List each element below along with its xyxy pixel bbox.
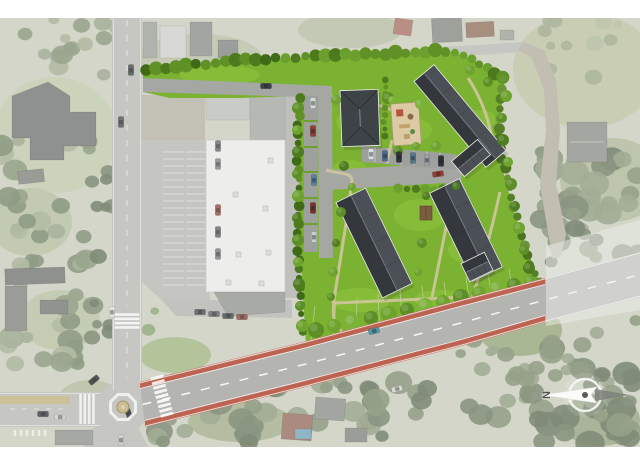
gray-house-c bbox=[143, 22, 157, 58]
play-equipment bbox=[399, 124, 410, 129]
tree-blob bbox=[529, 411, 549, 428]
tree-blob bbox=[337, 381, 352, 394]
tree-blob bbox=[97, 69, 111, 81]
tree-blob bbox=[51, 46, 73, 65]
tree-blob bbox=[29, 255, 44, 267]
letterbox-top bbox=[0, 0, 640, 18]
car bbox=[410, 153, 416, 164]
tree-blob bbox=[469, 404, 493, 425]
tree-blob bbox=[176, 424, 193, 438]
tree-blob bbox=[590, 327, 604, 339]
tree-blob bbox=[604, 34, 618, 46]
tree-blob bbox=[89, 249, 106, 264]
tree-blob bbox=[573, 337, 591, 352]
car bbox=[55, 414, 66, 420]
garage bbox=[17, 169, 44, 185]
tree-blob bbox=[31, 229, 48, 244]
east-house bbox=[567, 122, 607, 162]
tree-blob bbox=[85, 176, 99, 188]
tree-blob bbox=[52, 198, 70, 214]
car bbox=[215, 205, 221, 216]
tree-blob bbox=[76, 230, 92, 243]
ne-house bbox=[431, 17, 462, 43]
car bbox=[396, 152, 402, 163]
tree-blob bbox=[516, 370, 535, 386]
car bbox=[215, 249, 221, 260]
rooftop-unit bbox=[266, 250, 271, 255]
rooftop-unit bbox=[263, 206, 268, 211]
ne-shed bbox=[500, 30, 514, 40]
tree-blob bbox=[92, 320, 102, 329]
car bbox=[310, 98, 316, 109]
tree-blob bbox=[455, 349, 465, 358]
tree-blob bbox=[613, 21, 622, 29]
sw-house bbox=[55, 430, 93, 445]
tree-blob bbox=[561, 41, 573, 51]
rooftop-unit bbox=[259, 281, 264, 286]
car bbox=[311, 232, 317, 243]
market-top-band bbox=[206, 95, 250, 120]
scene-svg: N bbox=[0, 0, 640, 470]
farm-c bbox=[40, 300, 68, 314]
rooftop-unit bbox=[226, 280, 231, 285]
tree-blob bbox=[100, 202, 111, 211]
market-gravel bbox=[142, 95, 205, 140]
tree-blob bbox=[474, 362, 490, 376]
tree-blob bbox=[497, 347, 514, 362]
tree-blob bbox=[585, 70, 603, 85]
pool bbox=[295, 429, 311, 439]
car bbox=[310, 203, 316, 214]
compass-center-dot bbox=[582, 392, 589, 399]
play-equipment bbox=[404, 134, 410, 139]
market-gray-wing bbox=[250, 95, 285, 142]
tree-blob bbox=[6, 356, 24, 371]
farm-b bbox=[5, 286, 27, 331]
car bbox=[382, 151, 388, 162]
car bbox=[310, 126, 316, 137]
tree-blob bbox=[84, 331, 100, 345]
tree-blob bbox=[89, 299, 99, 307]
tree-blob bbox=[100, 174, 113, 185]
red-roof-house bbox=[393, 18, 413, 36]
parking-bays-west bbox=[304, 96, 318, 252]
tree-blob bbox=[34, 351, 53, 367]
car bbox=[215, 159, 221, 170]
car bbox=[438, 156, 444, 167]
tree-blob bbox=[623, 395, 637, 407]
tree-blob bbox=[548, 369, 563, 382]
car bbox=[215, 227, 221, 238]
car bbox=[209, 311, 220, 317]
rooftop-unit bbox=[236, 252, 241, 257]
market-lot bbox=[142, 140, 210, 300]
tree-blob bbox=[18, 28, 33, 41]
compass-north-label: N bbox=[541, 391, 553, 399]
tree-blob bbox=[600, 196, 617, 210]
tree-blob bbox=[228, 408, 254, 430]
car bbox=[432, 171, 444, 178]
tree-blob bbox=[73, 18, 90, 33]
tree-blob bbox=[606, 413, 634, 437]
tree-blob bbox=[150, 307, 159, 314]
car bbox=[195, 309, 206, 315]
tree-blob bbox=[485, 347, 496, 356]
tree-blob bbox=[77, 37, 93, 50]
car bbox=[424, 155, 430, 166]
white-house bbox=[160, 26, 186, 58]
road-median bbox=[0, 396, 70, 404]
farm-a bbox=[5, 267, 66, 285]
rooftop-unit bbox=[268, 158, 273, 163]
car bbox=[118, 435, 124, 446]
tree-blob bbox=[363, 389, 390, 412]
car bbox=[368, 149, 374, 160]
tree-blob bbox=[48, 224, 65, 239]
rooftop-unit bbox=[233, 192, 238, 197]
tree-blob bbox=[96, 31, 113, 45]
car bbox=[261, 83, 272, 89]
tree-blob bbox=[320, 382, 333, 393]
tree-blob bbox=[586, 37, 602, 51]
tree-blob bbox=[562, 353, 574, 363]
letterbox-bottom bbox=[0, 447, 640, 470]
tree-blob bbox=[566, 208, 581, 220]
car bbox=[215, 141, 221, 152]
tree-blob bbox=[156, 436, 170, 448]
tree-blob bbox=[546, 42, 556, 50]
generated-scene bbox=[0, 12, 640, 456]
tree-blob bbox=[142, 324, 156, 336]
tree-blob bbox=[50, 352, 73, 372]
south-house-gray bbox=[314, 397, 345, 421]
gray-house-a bbox=[190, 22, 212, 56]
car bbox=[38, 411, 49, 417]
s-house bbox=[345, 428, 367, 442]
car bbox=[223, 313, 234, 319]
play-equipment bbox=[396, 109, 403, 116]
building-a bbox=[340, 89, 380, 146]
tree-blob bbox=[499, 394, 516, 408]
tree-blob bbox=[60, 34, 71, 43]
tree-blob bbox=[18, 214, 36, 229]
tree-blob bbox=[538, 25, 552, 37]
tree-blob bbox=[560, 160, 589, 185]
ne-barn bbox=[466, 21, 495, 37]
car bbox=[109, 307, 115, 318]
masterplan-aerial-image: N bbox=[0, 0, 640, 470]
tree-blob bbox=[565, 220, 585, 237]
car bbox=[128, 65, 134, 76]
tree-blob bbox=[554, 424, 575, 442]
car bbox=[311, 175, 317, 186]
tree-blob bbox=[38, 49, 51, 60]
playground bbox=[391, 102, 422, 146]
tree-blob bbox=[543, 335, 561, 351]
tree-blob bbox=[411, 392, 432, 410]
car bbox=[118, 117, 124, 128]
garden-shed bbox=[420, 206, 432, 220]
car bbox=[237, 314, 248, 320]
